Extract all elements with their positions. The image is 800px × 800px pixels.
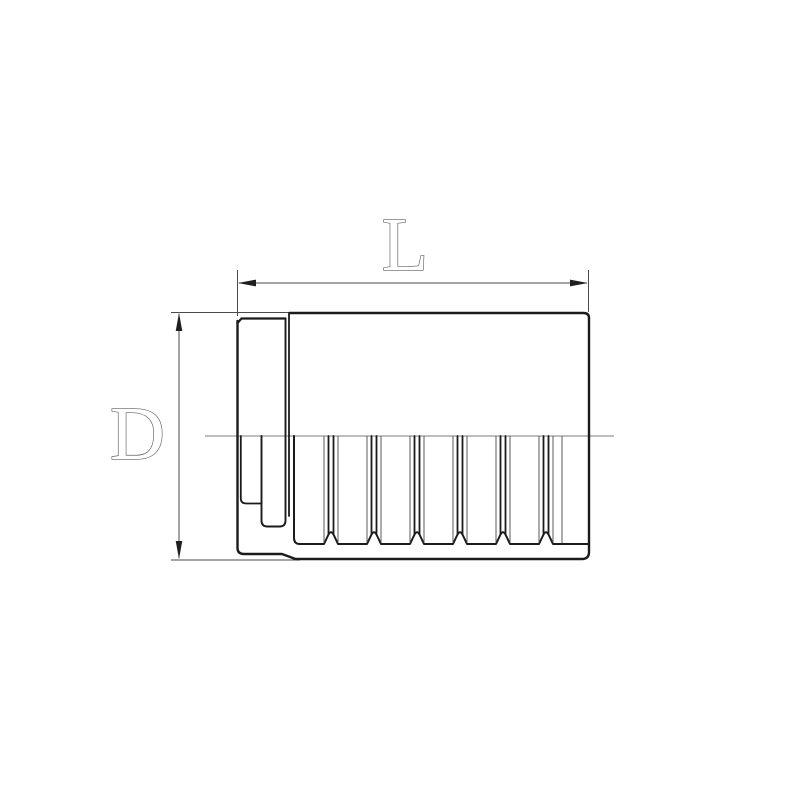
- label-diameter: D: [110, 392, 165, 476]
- tooth-base-lines: [324, 436, 553, 543]
- serration-tooth-edges: [329, 436, 549, 534]
- part-section-detail: [241, 319, 588, 545]
- relief-slot: [262, 319, 286, 527]
- arrowhead-down-icon: [176, 541, 183, 559]
- section-thin-lines: [324, 436, 562, 543]
- arrowhead-left-icon: [238, 280, 256, 287]
- arrowhead-right-icon: [570, 280, 588, 287]
- collar-top-edge: [238, 319, 286, 324]
- drawing-canvas: L D: [0, 0, 800, 800]
- arrowhead-up-icon: [176, 313, 183, 331]
- label-length: L: [382, 203, 428, 287]
- collar-inner-wall: [241, 436, 262, 504]
- engineering-drawing: L D: [0, 0, 800, 800]
